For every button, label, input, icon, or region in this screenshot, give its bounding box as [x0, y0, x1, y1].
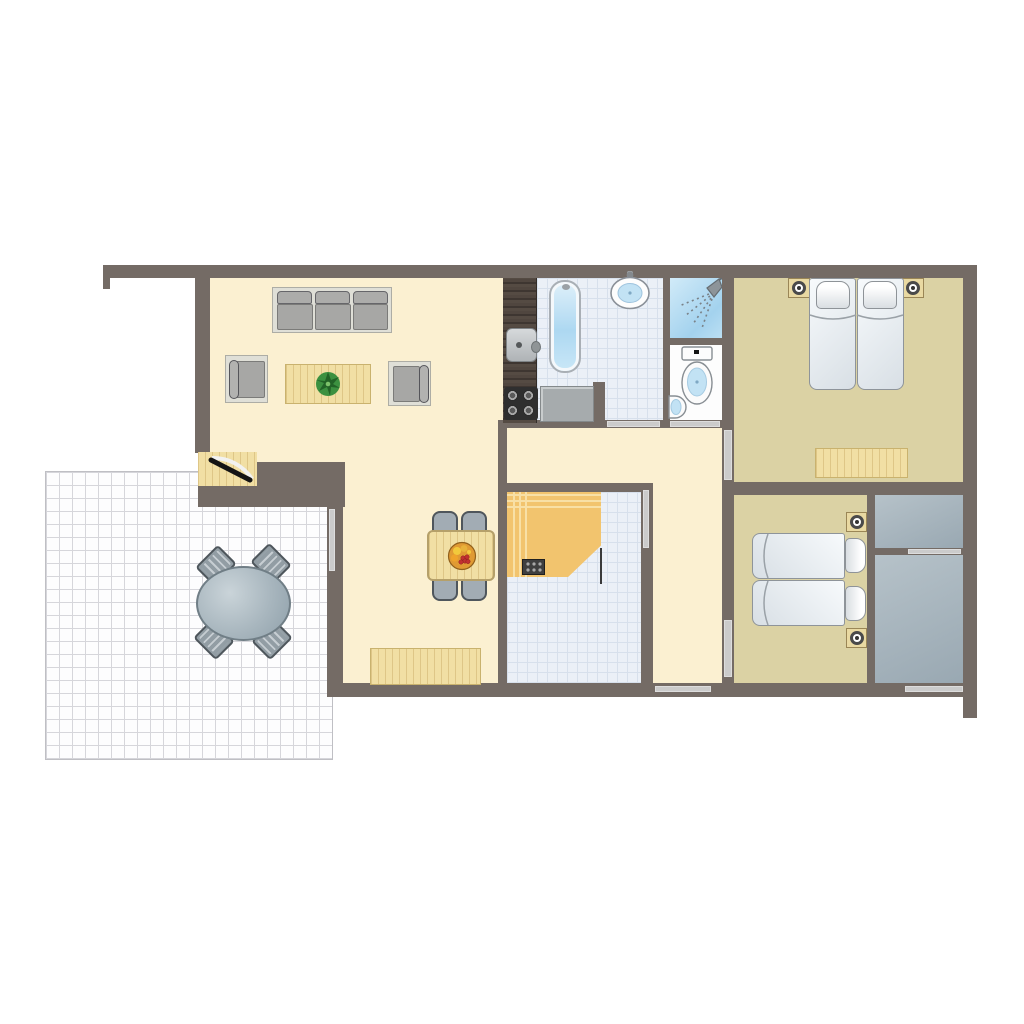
wall-sauna-north	[498, 483, 653, 492]
bathroom-door	[607, 421, 660, 427]
wc-door	[670, 421, 720, 427]
sofa-back-cushion	[315, 291, 350, 304]
sauna-glass-door	[643, 490, 649, 548]
wall-west-living	[195, 278, 210, 453]
hall-south-window	[655, 686, 711, 692]
wall-east	[963, 278, 977, 718]
storage-upper-floor	[875, 495, 963, 548]
sofa	[272, 287, 392, 333]
lamp-icon	[850, 515, 864, 529]
bed-double	[809, 278, 904, 390]
wall-counter-stub	[593, 382, 605, 422]
armchair-right	[388, 361, 431, 406]
sofa-seat-cushion	[277, 304, 313, 330]
wall-north-end-stub	[103, 278, 110, 289]
bathtub	[549, 280, 581, 373]
stove-burner	[507, 390, 518, 401]
storage-lower-floor	[875, 555, 963, 683]
armchair-cushion	[393, 366, 420, 402]
blanket-edge	[809, 278, 904, 328]
hand-basin	[668, 394, 688, 420]
stove-burner	[523, 390, 534, 401]
wash-basin	[608, 270, 652, 310]
side-counter	[540, 386, 594, 422]
armchair-left	[225, 355, 268, 403]
sofa-back-cushion	[353, 291, 388, 304]
bedroom-2-door	[724, 620, 732, 677]
bedroom-1-door	[724, 430, 732, 480]
lamp-icon	[850, 631, 864, 645]
nightstand	[846, 512, 867, 532]
terrace-table	[196, 566, 291, 641]
storage-south-window	[905, 686, 963, 692]
armchair-cushion	[236, 361, 265, 398]
hallway-floor-upper	[507, 428, 722, 483]
kitchen-sink	[506, 328, 537, 362]
sofa-seat-cushion	[353, 304, 388, 330]
stove-burner	[507, 405, 518, 416]
sink-faucet	[531, 341, 541, 353]
pillow	[845, 538, 866, 573]
stove	[504, 387, 538, 420]
armchair-armrest	[419, 365, 429, 403]
wall-entrance-south	[198, 485, 345, 507]
nightstand	[788, 278, 810, 298]
entry-threshold	[198, 452, 257, 486]
nightstand	[846, 628, 867, 648]
terrace-side-window	[329, 509, 335, 571]
bedroom-1-rug	[815, 448, 908, 478]
potted-plant	[314, 370, 342, 398]
floor-plan	[0, 0, 1024, 1024]
sink-drain	[516, 342, 522, 348]
wall-bedroom2-storage	[867, 495, 875, 683]
wall-dining-hall	[498, 420, 507, 683]
wall-bedroom-divider	[722, 482, 963, 495]
stove-burner	[523, 405, 534, 416]
sauna-door-leaf	[600, 548, 602, 584]
bathtub-faucet	[562, 284, 570, 290]
fruit-bowl	[447, 541, 477, 571]
storage-sliding-door	[908, 549, 961, 554]
terrace-floor	[45, 471, 333, 760]
wall-north	[103, 265, 977, 278]
dining-wood-mat	[370, 648, 481, 685]
entry-door-swing	[198, 452, 257, 486]
nightstand	[902, 278, 924, 298]
lamp-icon	[792, 281, 806, 295]
hallway-floor-east	[653, 483, 722, 683]
shower-head	[667, 278, 722, 338]
wall-shower-south	[665, 338, 722, 345]
armchair-armrest	[229, 360, 239, 399]
pillow	[845, 586, 866, 621]
sofa-seat-cushion	[315, 304, 351, 330]
blanket-edge	[752, 533, 792, 627]
sofa-back-cushion	[277, 291, 312, 304]
sauna-heater	[522, 559, 545, 575]
lamp-icon	[906, 281, 920, 295]
bed-twin	[752, 533, 867, 627]
wall-south	[327, 683, 977, 697]
